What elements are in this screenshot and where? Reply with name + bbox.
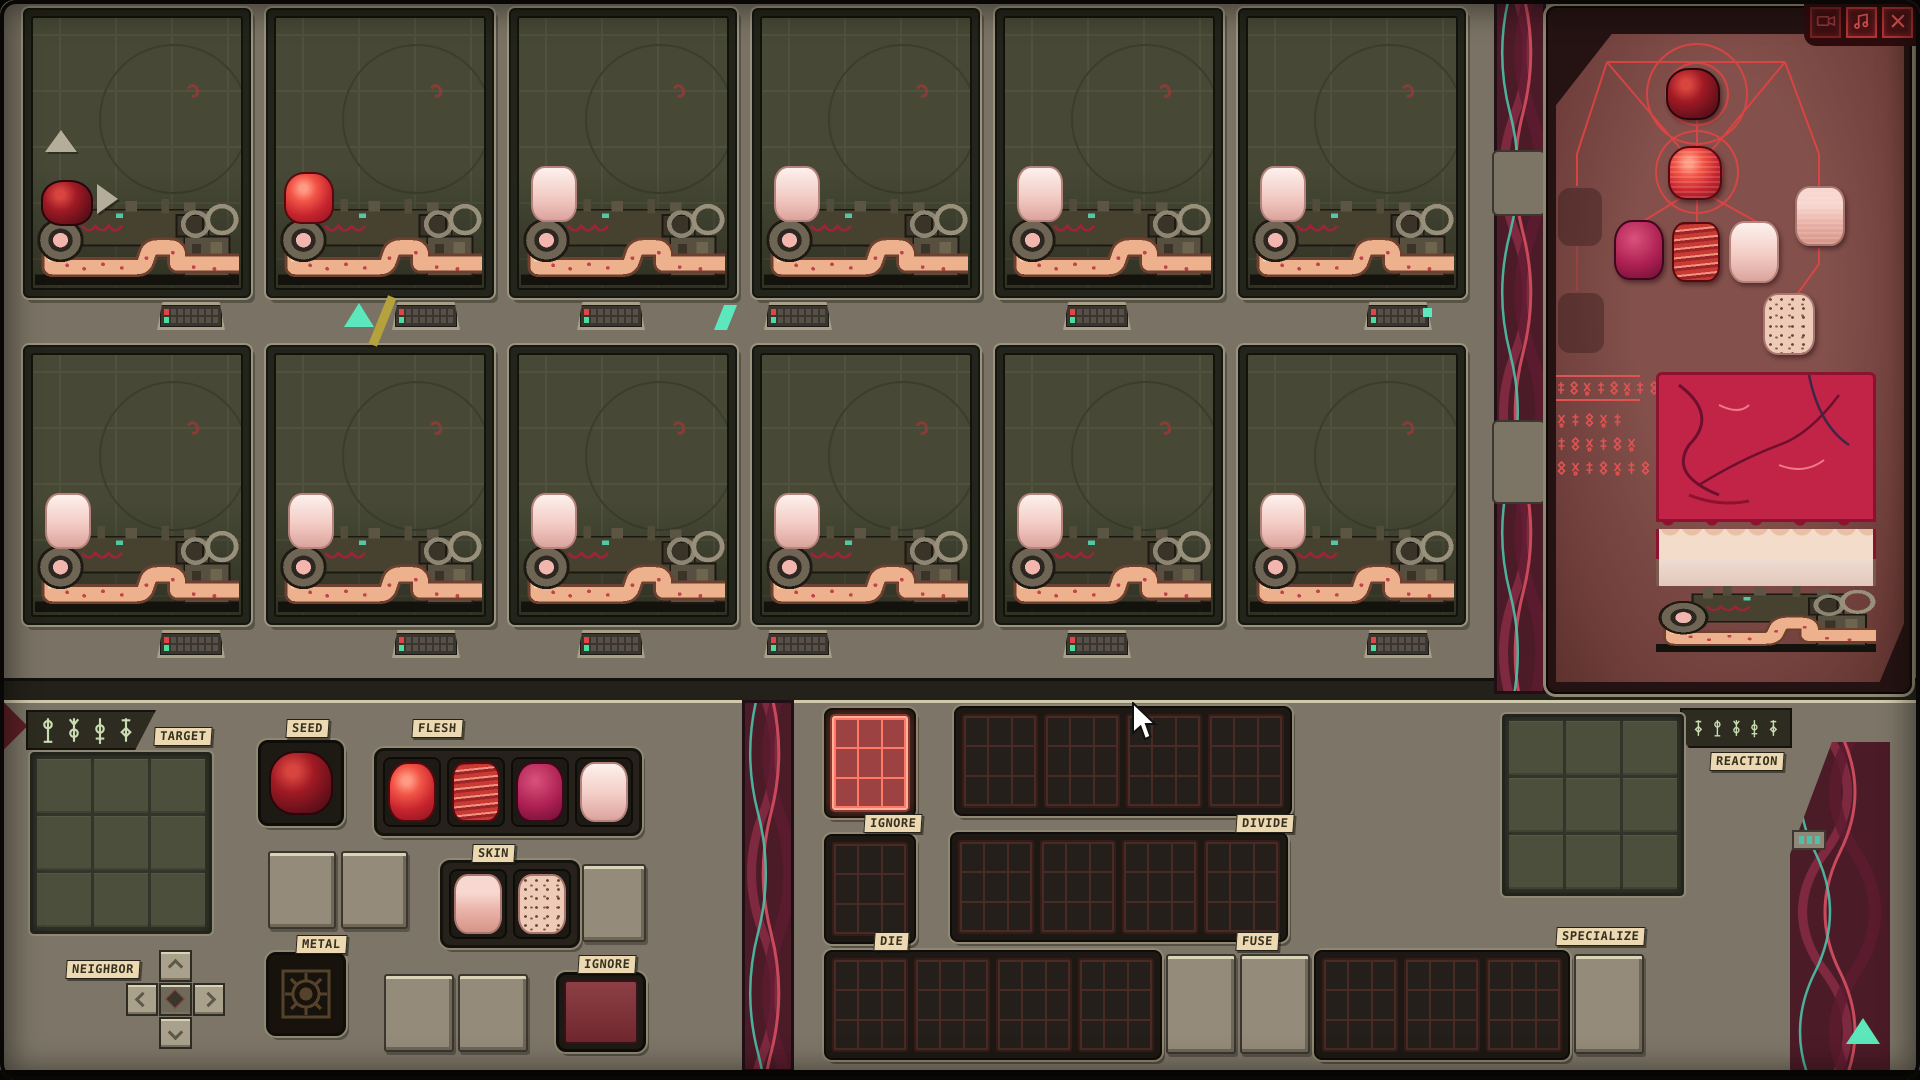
empty-swatch-slot[interactable] xyxy=(384,974,454,1052)
rule-cell[interactable] xyxy=(1048,747,1069,774)
ignore-swatch-slot[interactable] xyxy=(556,972,646,1052)
chamber-circle-decor xyxy=(828,44,972,194)
rule-cell[interactable] xyxy=(985,873,1006,900)
rule-cell[interactable] xyxy=(1149,844,1170,871)
rule-cell[interactable] xyxy=(966,747,987,774)
rune-glyph-icon xyxy=(1598,436,1609,452)
rule-cell[interactable] xyxy=(1255,844,1276,871)
organism-blob-seed xyxy=(41,180,93,226)
rule-cell[interactable] xyxy=(1048,718,1069,745)
target-glyph-display xyxy=(26,710,156,750)
rule-cell[interactable] xyxy=(965,1021,986,1048)
rule-cell[interactable] xyxy=(985,903,1006,930)
rune-glyph-icon xyxy=(1612,460,1623,476)
seed-swatch-slot[interactable] xyxy=(258,740,344,826)
rule-cell[interactable] xyxy=(1153,747,1174,774)
rule-cell[interactable] xyxy=(1009,873,1030,900)
rule-cell[interactable] xyxy=(836,720,857,747)
rule-cell[interactable] xyxy=(1091,873,1112,900)
rule-grid[interactable] xyxy=(996,958,1072,1052)
organism-blob-pink xyxy=(288,493,334,549)
tree-node-empty-slot-b xyxy=(1558,293,1604,353)
empty-swatch-slot[interactable] xyxy=(582,864,646,942)
chamber-circle-decor xyxy=(99,44,243,194)
mouse-cursor xyxy=(1132,702,1158,746)
tree-node-seed[interactable] xyxy=(1666,68,1720,120)
rule-cell[interactable] xyxy=(1408,1021,1429,1048)
rule-cell[interactable] xyxy=(1235,747,1256,774)
chamber-screen xyxy=(517,353,729,617)
tree-node-flesh-red[interactable] xyxy=(1668,146,1722,200)
rule-cell[interactable] xyxy=(1259,747,1280,774)
rule-cell[interactable] xyxy=(1071,718,1092,745)
rule-cell[interactable] xyxy=(966,718,987,745)
rule-cell[interactable] xyxy=(883,779,904,806)
status-led-panel xyxy=(157,630,225,658)
rule-cell[interactable] xyxy=(1013,747,1034,774)
gear-plate-icon xyxy=(277,963,335,1025)
rule-cell[interactable] xyxy=(836,779,857,806)
rule-cell[interactable] xyxy=(1349,962,1370,989)
rule-cell[interactable] xyxy=(1231,903,1252,930)
bio-glyph-icon xyxy=(90,715,110,745)
rule-grid[interactable] xyxy=(1044,714,1120,808)
rule-cell[interactable] xyxy=(836,905,857,932)
rule-cell[interactable] xyxy=(1129,1021,1150,1048)
tree-node-flesh-magenta[interactable] xyxy=(1614,220,1664,280)
smooth-skin-swatch[interactable] xyxy=(449,869,507,939)
pink-blob xyxy=(580,762,628,822)
rule-cell[interactable] xyxy=(966,777,987,804)
growth-chamber-5[interactable] xyxy=(995,8,1223,298)
striped-meat-swatch[interactable] xyxy=(447,757,505,827)
rule-cell[interactable] xyxy=(1208,844,1229,871)
music-button[interactable] xyxy=(1846,7,1877,38)
rule-cell[interactable] xyxy=(1044,873,1065,900)
rule-cell[interactable] xyxy=(883,1021,904,1048)
rule-cell[interactable] xyxy=(1048,777,1069,804)
rule-cell[interactable] xyxy=(1071,777,1092,804)
rule-cell[interactable] xyxy=(1431,991,1452,1018)
close-button[interactable] xyxy=(1882,7,1913,38)
pattern-cell[interactable] xyxy=(151,759,205,813)
rule-cell[interactable] xyxy=(1326,962,1347,989)
growth-chamber-12[interactable] xyxy=(1238,345,1466,625)
bio-glyph-icon xyxy=(1692,713,1705,743)
speckled-skin xyxy=(518,874,566,934)
pattern-cell[interactable] xyxy=(37,759,91,813)
conduit-cover-plate xyxy=(1492,150,1546,216)
rule-cell[interactable] xyxy=(941,1021,962,1048)
growth-chamber-2[interactable] xyxy=(266,8,494,298)
rule-cell[interactable] xyxy=(1408,962,1429,989)
rule-cell[interactable] xyxy=(1259,718,1280,745)
pattern-cell[interactable] xyxy=(1623,778,1677,832)
bio-glyph-icon xyxy=(64,715,84,745)
step-up-button[interactable] xyxy=(45,130,77,152)
rule-cell[interactable] xyxy=(836,991,857,1018)
rule-cell[interactable] xyxy=(1373,1021,1394,1048)
rule-grid[interactable] xyxy=(832,842,908,936)
pattern-cell[interactable] xyxy=(1623,835,1677,889)
rule-cell[interactable] xyxy=(1255,873,1276,900)
rule-cell[interactable] xyxy=(1349,1021,1370,1048)
rule-cell[interactable] xyxy=(962,844,983,871)
rule-grid[interactable] xyxy=(962,714,1038,808)
status-led-panel xyxy=(1063,302,1131,330)
rule-cell[interactable] xyxy=(985,844,1006,871)
conduit-cover-plate xyxy=(1492,420,1546,504)
speckled-skin-swatch[interactable] xyxy=(513,869,571,939)
organism-blob-red xyxy=(284,172,334,224)
rule-cell[interactable] xyxy=(989,747,1010,774)
rule-cell[interactable] xyxy=(1023,962,1044,989)
rule-cell[interactable] xyxy=(836,875,857,902)
rule-cell[interactable] xyxy=(859,991,880,1018)
rule-cell[interactable] xyxy=(962,873,983,900)
rule-cell[interactable] xyxy=(1082,1021,1103,1048)
rule-cell[interactable] xyxy=(1105,962,1126,989)
rule-cell[interactable] xyxy=(1455,962,1476,989)
status-led-panel xyxy=(577,630,645,658)
rule-cell[interactable] xyxy=(1153,777,1174,804)
growth-chamber-7[interactable] xyxy=(23,345,251,625)
rule-cell[interactable] xyxy=(918,1021,939,1048)
rule-cell[interactable] xyxy=(1173,903,1194,930)
rule-cell[interactable] xyxy=(989,777,1010,804)
rule-cell[interactable] xyxy=(1208,873,1229,900)
dpad-down-button[interactable] xyxy=(159,1017,191,1049)
rule-cell[interactable] xyxy=(859,846,880,873)
die-rule-slot xyxy=(824,834,916,944)
rule-cell[interactable] xyxy=(859,779,880,806)
rule-cell[interactable] xyxy=(1130,747,1151,774)
seed-label: SEED xyxy=(285,719,329,738)
organism-blob-pink xyxy=(1017,166,1063,222)
tree-node-flesh-striped[interactable] xyxy=(1672,222,1720,282)
rule-cell[interactable] xyxy=(1455,991,1476,1018)
organism-blob-pink xyxy=(1260,166,1306,222)
rule-grid[interactable] xyxy=(1486,958,1562,1052)
rule-cell[interactable] xyxy=(1208,903,1229,930)
rule-cell[interactable] xyxy=(1082,962,1103,989)
rule-cell[interactable] xyxy=(918,962,939,989)
dpad-right-button[interactable] xyxy=(193,983,225,1015)
rule-cell[interactable] xyxy=(1431,962,1452,989)
rule-cell[interactable] xyxy=(1126,903,1147,930)
rule-cell[interactable] xyxy=(1231,844,1252,871)
organism-blob-pink xyxy=(45,493,91,549)
chamber-screen xyxy=(517,16,729,290)
rule-cell[interactable] xyxy=(1326,1021,1347,1048)
record-button[interactable] xyxy=(1810,7,1841,38)
tree-node-empty-slot-a xyxy=(1558,188,1602,246)
chamber-screen xyxy=(31,16,243,290)
rule-cell[interactable] xyxy=(1431,1021,1452,1048)
rule-cell[interactable] xyxy=(1044,844,1065,871)
specimen-preview xyxy=(1656,372,1876,654)
tree-node-flesh-pink[interactable] xyxy=(1729,221,1779,283)
pattern-cell[interactable] xyxy=(94,873,148,927)
rule-cell[interactable] xyxy=(1091,903,1112,930)
rule-cell[interactable] xyxy=(1071,747,1092,774)
rule-cell[interactable] xyxy=(1149,873,1170,900)
rule-cell[interactable] xyxy=(1067,903,1088,930)
rule-cell[interactable] xyxy=(883,749,904,776)
empty-rule-slot[interactable] xyxy=(1240,954,1310,1054)
pattern-cell[interactable] xyxy=(151,816,205,870)
rule-cell[interactable] xyxy=(1095,747,1116,774)
empty-swatch-slot[interactable] xyxy=(268,851,336,929)
rule-cell[interactable] xyxy=(1129,991,1150,1018)
rune-glyph-icon xyxy=(1612,412,1623,428)
rule-grid[interactable] xyxy=(832,958,908,1052)
rule-grid[interactable] xyxy=(1404,958,1480,1052)
rune-glyph-icon xyxy=(1635,380,1645,396)
rule-cell[interactable] xyxy=(883,991,904,1018)
rule-grid[interactable] xyxy=(1204,840,1280,934)
pink-blob-swatch[interactable] xyxy=(575,757,633,827)
rule-cell[interactable] xyxy=(1130,777,1151,804)
rule-cell[interactable] xyxy=(1047,962,1068,989)
rule-cell[interactable] xyxy=(1000,962,1021,989)
rule-cell[interactable] xyxy=(1126,873,1147,900)
rule-cell[interactable] xyxy=(1067,873,1088,900)
fuse-rule-label: FUSE xyxy=(1235,932,1279,951)
rule-cell[interactable] xyxy=(1149,903,1170,930)
rule-cell[interactable] xyxy=(965,991,986,1018)
rule-cell[interactable] xyxy=(883,875,904,902)
empty-rule-slot[interactable] xyxy=(1166,954,1236,1054)
rule-cell[interactable] xyxy=(1212,718,1233,745)
rule-cell[interactable] xyxy=(941,962,962,989)
rule-cell[interactable] xyxy=(1105,991,1126,1018)
empty-swatch-slot[interactable] xyxy=(341,851,408,929)
rune-glyph-icon xyxy=(1626,460,1637,476)
growth-chamber-9[interactable] xyxy=(509,345,737,625)
rune-glyph-icon xyxy=(1556,436,1567,452)
bio-glyph-icon xyxy=(1767,713,1780,743)
specialize-rule-tray xyxy=(1314,950,1570,1060)
neighbor-dpad xyxy=(126,950,225,1049)
rule-cell[interactable] xyxy=(883,846,904,873)
rule-cell[interactable] xyxy=(1129,962,1150,989)
growth-chamber-11[interactable] xyxy=(995,345,1223,625)
growth-chamber-3[interactable] xyxy=(509,8,737,298)
rule-cell[interactable] xyxy=(1126,844,1147,871)
rule-cell[interactable] xyxy=(859,905,880,932)
rule-cell[interactable] xyxy=(1009,903,1030,930)
rule-cell[interactable] xyxy=(1326,991,1347,1018)
rule-cell[interactable] xyxy=(836,749,857,776)
empty-rule-slot[interactable] xyxy=(1574,954,1644,1054)
rule-cell[interactable] xyxy=(859,875,880,902)
pattern-cell[interactable] xyxy=(37,873,91,927)
pattern-cell[interactable] xyxy=(94,759,148,813)
rule-cell[interactable] xyxy=(1000,991,1021,1018)
growth-chamber-8[interactable] xyxy=(266,345,494,625)
rule-cell[interactable] xyxy=(962,903,983,930)
dpad-up-button[interactable] xyxy=(159,950,191,982)
chamber-circle-decor xyxy=(585,381,729,531)
magenta-blob-swatch[interactable] xyxy=(511,757,569,827)
rule-grid-selected[interactable] xyxy=(832,716,908,810)
pattern-cell[interactable] xyxy=(151,873,205,927)
empty-swatch-slot[interactable] xyxy=(458,974,528,1052)
rule-cell[interactable] xyxy=(1105,1021,1126,1048)
rule-cell[interactable] xyxy=(1177,747,1198,774)
chamber-circle-decor xyxy=(828,381,972,531)
rule-cell[interactable] xyxy=(859,1021,880,1048)
rule-cell[interactable] xyxy=(1047,991,1068,1018)
reaction-pattern-grid xyxy=(1502,714,1684,896)
chamber-screen xyxy=(274,16,486,290)
rule-cell[interactable] xyxy=(1255,903,1276,930)
rule-cell[interactable] xyxy=(1009,844,1030,871)
pattern-cell[interactable] xyxy=(1509,835,1563,889)
magenta-blob xyxy=(516,762,564,822)
rule-cell[interactable] xyxy=(1013,777,1034,804)
bio-machine-art xyxy=(1656,586,1876,652)
rule-cell[interactable] xyxy=(883,905,904,932)
rule-cell[interactable] xyxy=(883,962,904,989)
bio-glyph-icon xyxy=(116,715,136,745)
teal-dot-marker xyxy=(1423,308,1432,317)
status-led-panel xyxy=(1364,302,1432,330)
rule-cell[interactable] xyxy=(1095,777,1116,804)
rule-cell[interactable] xyxy=(1537,1021,1558,1048)
rule-cell[interactable] xyxy=(1091,844,1112,871)
rule-cell[interactable] xyxy=(989,718,1010,745)
rule-cell[interactable] xyxy=(965,962,986,989)
rule-cell[interactable] xyxy=(1235,777,1256,804)
metal-swatch-slot[interactable] xyxy=(266,952,346,1036)
rule-cell[interactable] xyxy=(1013,718,1034,745)
rule-cell[interactable] xyxy=(918,991,939,1018)
red-blob-swatch[interactable] xyxy=(383,757,441,827)
rule-grid[interactable] xyxy=(958,840,1034,934)
rule-cell[interactable] xyxy=(1235,718,1256,745)
dpad-left-button[interactable] xyxy=(126,983,158,1015)
rule-cell[interactable] xyxy=(1490,962,1511,989)
rule-cell[interactable] xyxy=(1095,718,1116,745)
play-button[interactable] xyxy=(97,184,118,214)
tree-node-skin-speckled[interactable] xyxy=(1763,293,1815,355)
organism-blob-pink xyxy=(774,166,820,222)
pattern-cell[interactable] xyxy=(1509,778,1563,832)
rule-grid[interactable] xyxy=(1078,958,1154,1052)
skin-label: SKIN xyxy=(471,844,515,863)
rule-cell[interactable] xyxy=(1373,991,1394,1018)
growth-chamber-10[interactable] xyxy=(752,345,980,625)
die-rule-label: DIE xyxy=(873,932,910,951)
rule-grid[interactable] xyxy=(1122,840,1198,934)
rule-cell[interactable] xyxy=(1537,962,1558,989)
rule-cell[interactable] xyxy=(1231,873,1252,900)
rule-grid[interactable] xyxy=(1040,840,1116,934)
rule-cell[interactable] xyxy=(1177,718,1198,745)
pattern-cell[interactable] xyxy=(1566,835,1620,889)
rule-cell[interactable] xyxy=(1047,1021,1068,1048)
growth-chamber-1[interactable] xyxy=(23,8,251,298)
target-pattern-grid xyxy=(30,752,212,934)
neighbor-label: NEIGHBOR xyxy=(65,960,140,979)
growth-chamber-4[interactable] xyxy=(752,8,980,298)
rule-cell[interactable] xyxy=(1082,991,1103,1018)
pattern-cell[interactable] xyxy=(37,816,91,870)
rule-cell[interactable] xyxy=(859,749,880,776)
rule-cell[interactable] xyxy=(1455,1021,1476,1048)
tree-node-skin-smooth[interactable] xyxy=(1795,186,1845,246)
rule-cell[interactable] xyxy=(883,720,904,747)
rule-cell[interactable] xyxy=(1259,777,1280,804)
chamber-circle-decor xyxy=(342,44,486,194)
rule-grid[interactable] xyxy=(1208,714,1284,808)
specialize-rule-tray xyxy=(824,950,1162,1060)
rule-cell[interactable] xyxy=(1373,962,1394,989)
specimen-inscription xyxy=(1556,372,1672,484)
rune-glyph-icon xyxy=(1556,460,1567,476)
rune-glyph-icon xyxy=(1556,412,1567,428)
rule-grid[interactable] xyxy=(914,958,990,1052)
pattern-cell[interactable] xyxy=(1509,721,1563,775)
rule-cell[interactable] xyxy=(1490,991,1511,1018)
rule-cell[interactable] xyxy=(1408,991,1429,1018)
rule-cell[interactable] xyxy=(1000,1021,1021,1048)
rule-cell[interactable] xyxy=(1537,991,1558,1018)
preview-machine xyxy=(1656,586,1876,652)
rune-glyph-icon xyxy=(1584,460,1595,476)
target-label: TARGET xyxy=(153,727,213,746)
pattern-cell[interactable] xyxy=(1566,778,1620,832)
pattern-cell[interactable] xyxy=(94,816,148,870)
rule-cell[interactable] xyxy=(1513,962,1534,989)
fuse-rule-tray xyxy=(950,832,1288,942)
pattern-cell[interactable] xyxy=(1623,721,1677,775)
organism-blob-pink xyxy=(1260,493,1306,549)
dpad-center-button[interactable] xyxy=(159,983,191,1015)
rule-cell[interactable] xyxy=(859,720,880,747)
rule-cell[interactable] xyxy=(836,846,857,873)
rule-cell[interactable] xyxy=(1349,991,1370,1018)
flesh-swatch-tray xyxy=(374,748,642,836)
pattern-cell[interactable] xyxy=(1566,721,1620,775)
rule-cell[interactable] xyxy=(941,991,962,1018)
rule-cell[interactable] xyxy=(1212,747,1233,774)
rule-cell[interactable] xyxy=(1044,903,1065,930)
rule-cell[interactable] xyxy=(1177,777,1198,804)
rule-cell[interactable] xyxy=(836,1021,857,1048)
rule-cell[interactable] xyxy=(1513,1021,1534,1048)
rule-cell[interactable] xyxy=(1513,991,1534,1018)
rule-cell[interactable] xyxy=(859,962,880,989)
rule-cell[interactable] xyxy=(1490,1021,1511,1048)
rule-cell[interactable] xyxy=(1173,873,1194,900)
divide-rule-tray xyxy=(954,706,1292,816)
rule-cell[interactable] xyxy=(1023,1021,1044,1048)
chamber-circle-decor xyxy=(1314,381,1458,531)
rule-grid[interactable] xyxy=(1322,958,1398,1052)
rule-cell[interactable] xyxy=(836,962,857,989)
rule-cell[interactable] xyxy=(1023,991,1044,1018)
rule-cell[interactable] xyxy=(1212,777,1233,804)
rule-cell[interactable] xyxy=(1067,844,1088,871)
organism-blob-pink xyxy=(774,493,820,549)
rune-glyph-icon xyxy=(1584,436,1595,452)
rule-cell[interactable] xyxy=(1173,844,1194,871)
growth-chamber-6[interactable] xyxy=(1238,8,1466,298)
chamber-circle-decor xyxy=(1071,381,1215,531)
